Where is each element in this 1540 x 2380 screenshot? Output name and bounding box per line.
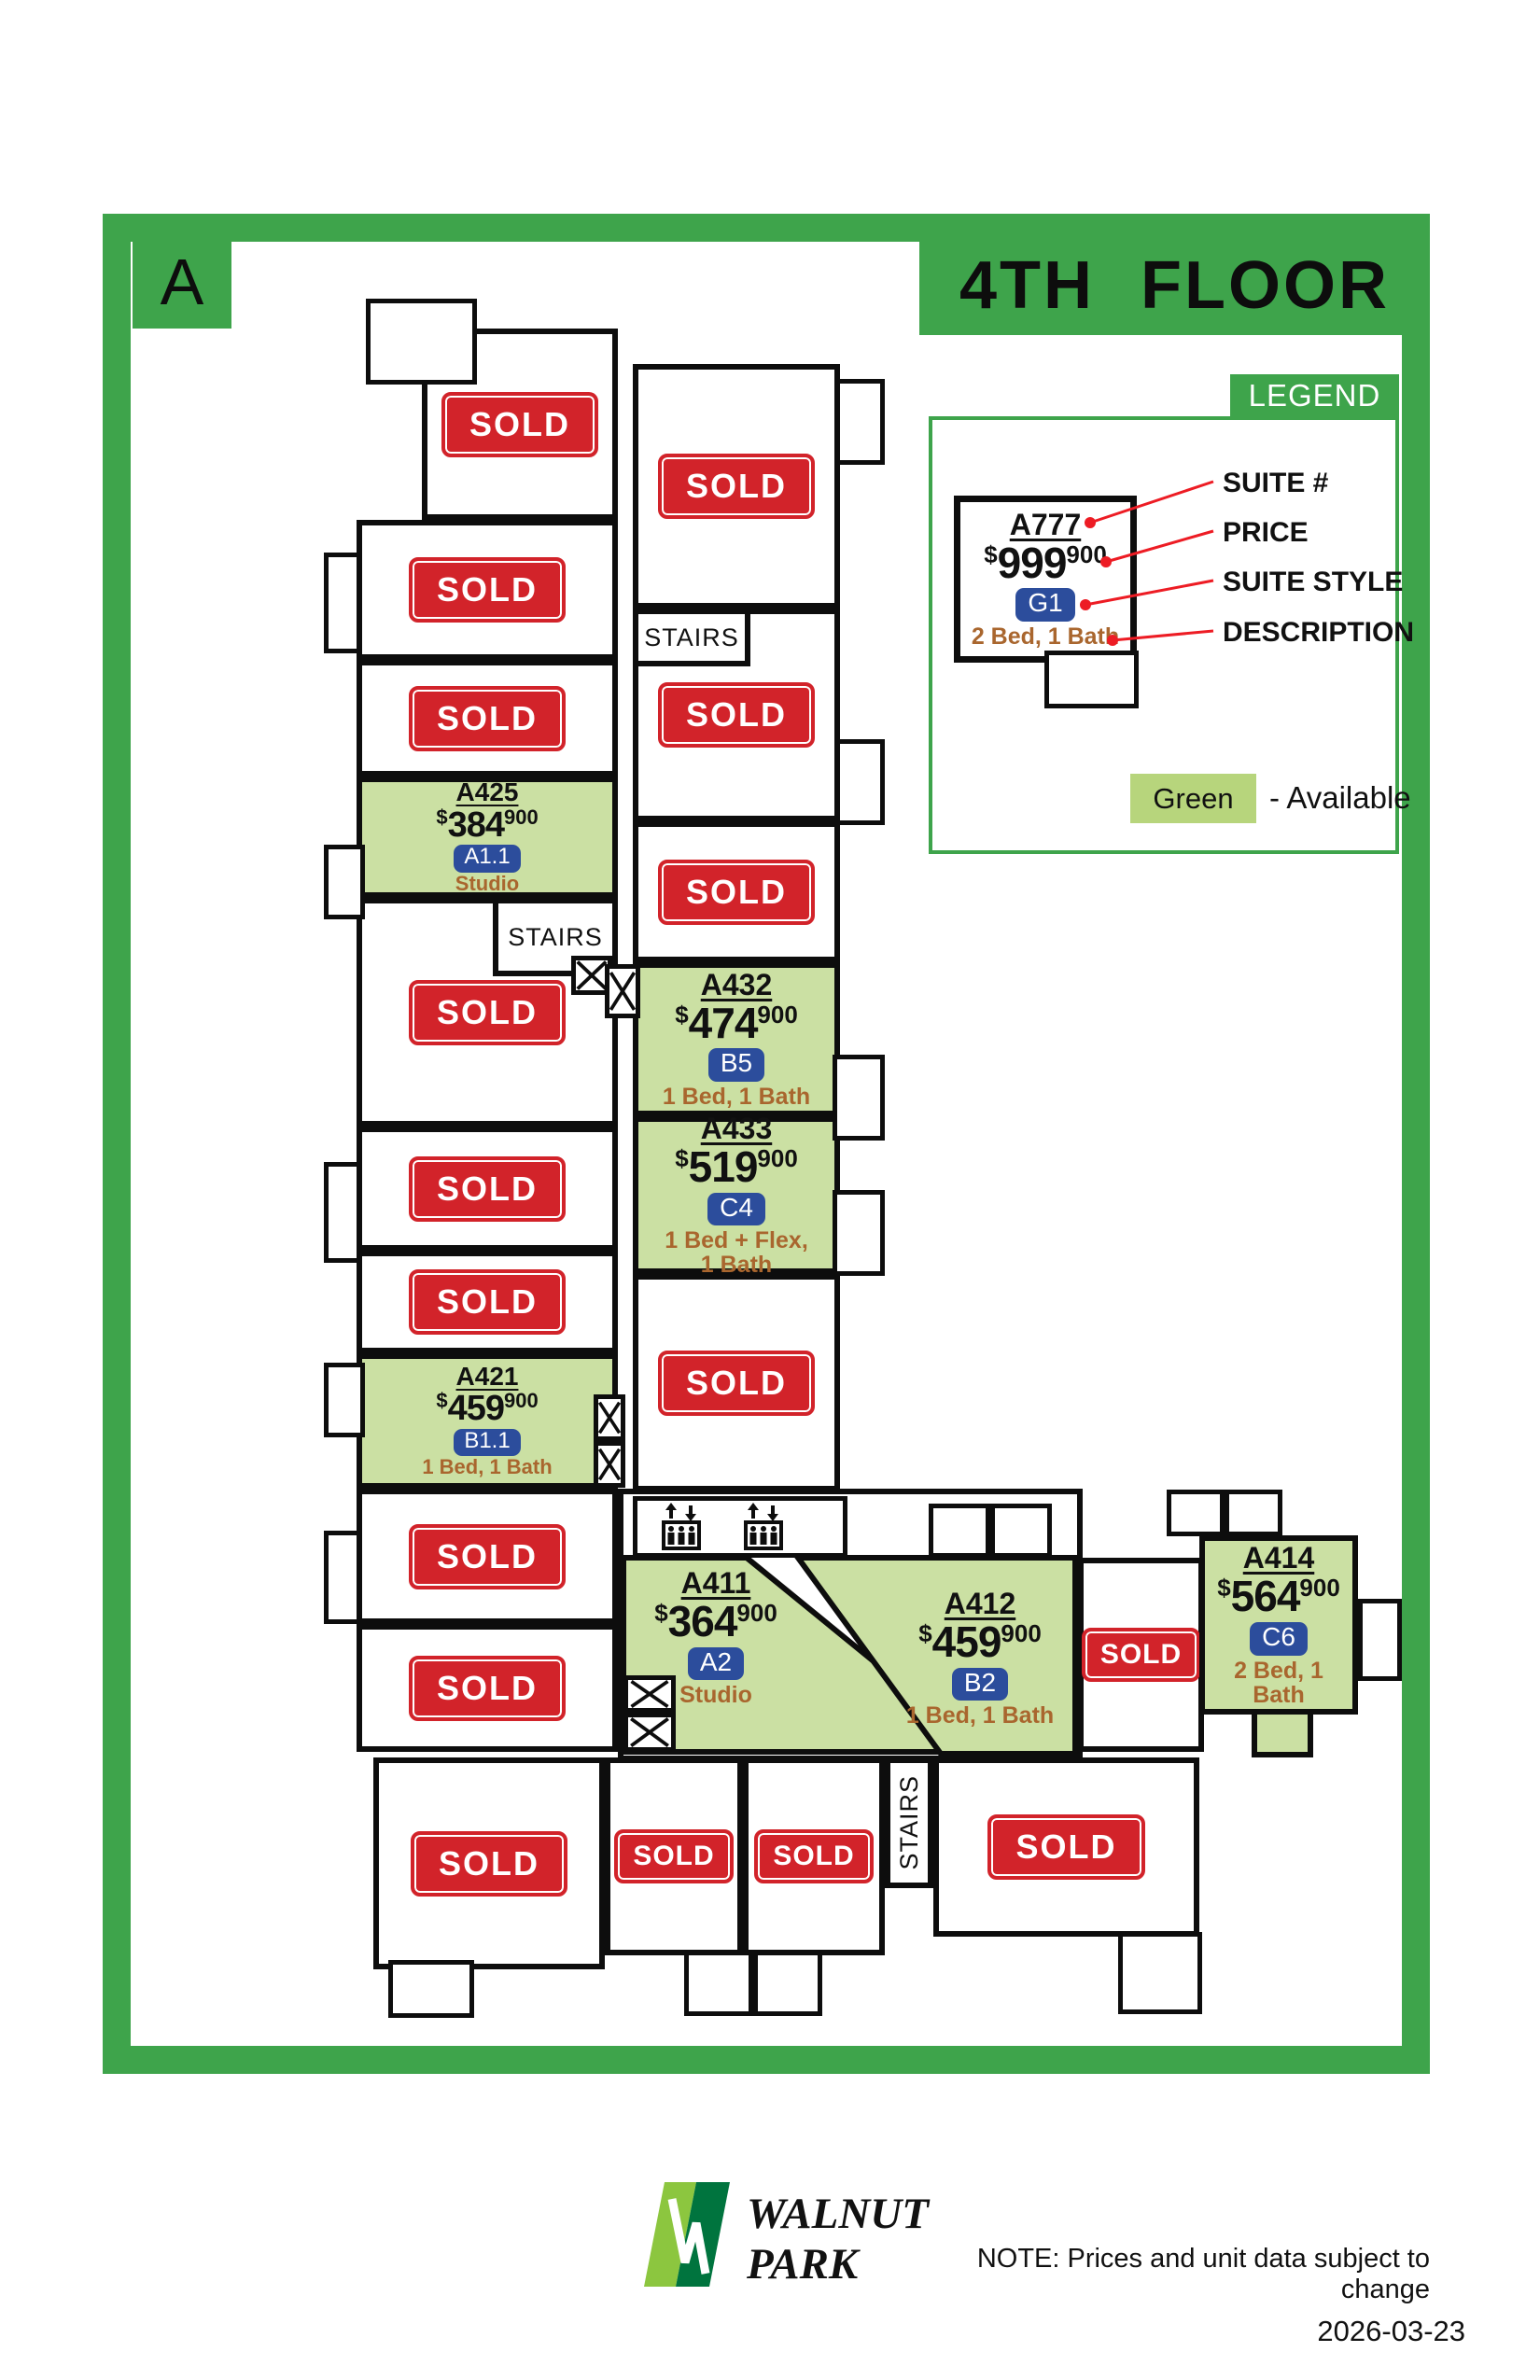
legend-label-description: DESCRIPTION <box>1223 617 1414 649</box>
unit-A412-label: A412$459900B21 Bed, 1 Bath <box>887 1589 1073 1728</box>
suite-number: A432 <box>663 970 810 1001</box>
building-block-label: A <box>133 235 231 329</box>
balcony <box>366 299 477 385</box>
unit-A433: A433$519900C41 Bed + Flex,1 Bath <box>633 1116 840 1274</box>
unit-price: $474900 <box>663 1001 810 1045</box>
brand-line2: PARK <box>747 2240 929 2290</box>
balcony <box>833 379 885 465</box>
page-title: 4TH FLOOR <box>919 235 1430 335</box>
stair-shaft-icon <box>594 1441 625 1488</box>
unit-description: 2 Bed, 1 Bath <box>972 624 1119 649</box>
suite-style-badge-wrap: A1.1 <box>436 843 538 873</box>
suite-style-badge-wrap: B2 <box>906 1664 1054 1704</box>
currency-sign: $ <box>984 540 997 568</box>
sold-room: SOLD <box>933 1757 1199 1937</box>
unit-description: 1 Bed + Flex, <box>665 1228 808 1253</box>
suite-number: A425 <box>436 779 538 806</box>
unit-description: 1 Bed, 1 Bath <box>663 1085 810 1109</box>
sold-badge: SOLD <box>409 980 566 1045</box>
suite-style-badge: C6 <box>1250 1622 1308 1656</box>
suite-style-badge-wrap: B1.1 <box>422 1427 552 1457</box>
sold-room: SOLD <box>357 1127 618 1251</box>
legend-label-suite-number: SUITE # <box>1223 468 1328 499</box>
suite-number: A414 <box>1205 1543 1352 1574</box>
unit-info-block: A421$459900B1.11 Bed, 1 Bath <box>422 1364 552 1479</box>
stairs-room: STAIRS <box>633 609 750 666</box>
suite-number: A777 <box>972 510 1119 540</box>
legend-sample-unit: A777 $999900 G1 2 Bed, 1 Bath <box>954 496 1137 663</box>
suite-style-badge: B5 <box>708 1048 764 1082</box>
unit-info-block: A433$519900C41 Bed + Flex,1 Bath <box>665 1113 808 1277</box>
unit-price: $999900 <box>972 541 1119 585</box>
available-swatch-text: - Available <box>1269 780 1411 816</box>
stairs-label: STAIRS <box>895 1775 924 1870</box>
sold-badge: SOLD <box>658 454 815 519</box>
suite-style-badge: A1.1 <box>454 845 520 872</box>
suite-style-badge: C4 <box>707 1193 765 1226</box>
elevator-lobby <box>633 1496 847 1558</box>
balcony <box>833 1055 885 1141</box>
currency-sign: $ <box>436 805 447 829</box>
unit-price: $519900 <box>665 1145 808 1189</box>
suite-style-badge: B2 <box>952 1668 1008 1701</box>
legend-title: LEGEND <box>1230 374 1399 416</box>
suite-style-badge-wrap: C4 <box>665 1189 808 1229</box>
elevator-icon <box>742 1502 785 1552</box>
sold-badge: SOLD <box>411 1831 567 1897</box>
price-cents: 900 <box>1001 1619 1041 1647</box>
unit-info-block: A425$384900A1.1Studio <box>436 779 538 895</box>
balcony <box>753 1951 822 2016</box>
price-main: 384 <box>448 805 504 845</box>
sold-room: SOLD <box>633 821 840 962</box>
price-main: 564 <box>1231 1572 1300 1620</box>
sold-badge: SOLD <box>754 1829 873 1883</box>
sold-room: SOLD <box>373 1757 605 1969</box>
suite-style-badge: G1 <box>1015 588 1074 622</box>
unit-info-block: A414$564900C62 Bed, 1 Bath <box>1205 1543 1352 1706</box>
price-cents: 900 <box>1066 540 1106 568</box>
suite-style-badge-wrap: C6 <box>1205 1618 1352 1659</box>
balcony <box>833 1190 885 1276</box>
balcony <box>1225 1490 1282 1536</box>
suite-number: A433 <box>665 1113 808 1144</box>
currency-sign: $ <box>654 1599 667 1627</box>
currency-sign: $ <box>675 1144 688 1172</box>
currency-sign: $ <box>436 1389 447 1412</box>
suite-style-badge-wrap: B5 <box>663 1044 810 1085</box>
legend-label-price: PRICE <box>1223 517 1309 549</box>
sold-room: SOLD <box>357 520 618 660</box>
currency-sign: $ <box>918 1619 931 1647</box>
brand-name: WALNUT PARK <box>747 2190 929 2289</box>
stair-shaft-icon <box>605 964 640 1018</box>
floorplan-flyer: A 4TH FLOOR LEGEND A777 $999900 G1 2 Bed… <box>0 0 1540 2380</box>
legend-label-suite-style: SUITE STYLE <box>1223 567 1403 598</box>
balcony <box>324 845 365 919</box>
sold-room: SOLD <box>357 1489 618 1624</box>
price-cents: 900 <box>736 1599 777 1627</box>
sold-room: SOLD <box>1078 1558 1204 1752</box>
walnut-park-logo-icon <box>644 2182 730 2287</box>
stairs-room: STAIRS <box>885 1757 933 1888</box>
suite-style-badge-wrap: A2 <box>654 1644 777 1684</box>
disclaimer-note: NOTE: Prices and unit data subject to ch… <box>933 2244 1430 2305</box>
available-color-swatch: Green <box>1130 774 1256 823</box>
balcony <box>324 1363 365 1437</box>
unit-extension <box>1252 1709 1313 1757</box>
sold-room: SOLD <box>633 364 840 609</box>
balcony <box>929 1504 990 1558</box>
unit-price: $459900 <box>422 1391 552 1427</box>
suite-number: A412 <box>906 1589 1054 1619</box>
sold-room: SOLD <box>633 1274 840 1491</box>
unit-A414: A414$564900C62 Bed, 1 Bath <box>1199 1535 1358 1715</box>
unit-price: $459900 <box>906 1620 1054 1664</box>
price-main: 459 <box>932 1617 1001 1666</box>
suite-number: A421 <box>422 1364 552 1391</box>
brand-line1: WALNUT <box>747 2190 929 2240</box>
price-main: 459 <box>448 1389 504 1428</box>
sold-badge: SOLD <box>441 392 598 457</box>
sold-badge: SOLD <box>409 1156 566 1222</box>
unit-A421: A421$459900B1.11 Bed, 1 Bath <box>357 1353 618 1489</box>
sold-room: SOLD <box>357 1624 618 1752</box>
price-cents: 900 <box>1299 1574 1339 1602</box>
currency-sign: $ <box>675 1001 688 1029</box>
unit-A411-label: A411$364900A2Studio <box>627 1568 805 1707</box>
stairs-label: STAIRS <box>508 923 603 952</box>
unit-description: 2 Bed, 1 Bath <box>1205 1659 1352 1707</box>
sold-room: SOLD <box>357 1251 618 1353</box>
unit-info-block: A432$474900B51 Bed, 1 Bath <box>663 970 810 1109</box>
suite-style-badge: A2 <box>688 1647 744 1681</box>
balcony <box>684 1951 753 2016</box>
currency-sign: $ <box>1217 1574 1230 1602</box>
unit-description: 1 Bed, 1 Bath <box>906 1703 1054 1728</box>
sold-badge: SOLD <box>658 860 815 925</box>
balcony <box>1118 1932 1202 2014</box>
unit-description: Studio <box>436 874 538 895</box>
balcony <box>388 1960 474 2018</box>
sold-badge: SOLD <box>409 1524 566 1589</box>
price-cents: 900 <box>757 1001 797 1029</box>
price-cents: 900 <box>504 1389 539 1412</box>
unit-price: $384900 <box>436 807 538 844</box>
stair-shaft-icon <box>594 1394 625 1441</box>
unit-price: $364900 <box>654 1600 777 1644</box>
price-main: 519 <box>689 1142 758 1191</box>
sold-badge: SOLD <box>987 1814 1144 1880</box>
sold-badge: SOLD <box>409 557 566 623</box>
sold-room: SOLD <box>743 1757 885 1955</box>
balcony <box>833 739 885 825</box>
suite-style-badge: B1.1 <box>454 1429 520 1456</box>
sold-room: SOLD <box>605 1757 743 1955</box>
unit-description: Studio <box>654 1683 777 1707</box>
stairs-label: STAIRS <box>644 623 739 652</box>
sold-room: SOLD <box>357 660 618 777</box>
sold-badge: SOLD <box>409 1656 566 1721</box>
sold-badge: SOLD <box>614 1829 733 1883</box>
price-main: 999 <box>998 539 1067 587</box>
elevator-icon <box>660 1502 703 1552</box>
sold-badge: SOLD <box>409 686 566 751</box>
price-cents: 900 <box>757 1144 797 1172</box>
price-cents: 900 <box>504 805 539 829</box>
unit-A425: A425$384900A1.1Studio <box>357 777 618 898</box>
unit-info-block: A412$459900B21 Bed, 1 Bath <box>906 1589 1054 1728</box>
suite-number: A411 <box>654 1568 777 1599</box>
date-stamp: 2026-03-23 <box>1213 2315 1465 2348</box>
legend-sample-balcony <box>1044 651 1139 708</box>
unit-description: 1 Bed, 1 Bath <box>422 1457 552 1478</box>
balcony <box>990 1504 1052 1558</box>
legend-sample-unit-block: A777 $999900 G1 2 Bed, 1 Bath <box>972 510 1119 649</box>
unit-info-block: A411$364900A2Studio <box>654 1568 777 1707</box>
sold-badge: SOLD <box>658 1351 815 1416</box>
unit-A432: A432$474900B51 Bed, 1 Bath <box>633 962 840 1116</box>
balcony <box>1358 1599 1402 1681</box>
sold-badge: SOLD <box>409 1269 566 1335</box>
stair-shaft-icon <box>623 1713 676 1752</box>
sold-badge: SOLD <box>658 682 815 748</box>
price-main: 364 <box>668 1597 737 1645</box>
sold-badge: SOLD <box>1082 1628 1200 1682</box>
balcony <box>1167 1490 1225 1536</box>
price-main: 474 <box>689 999 758 1047</box>
unit-price: $564900 <box>1205 1575 1352 1618</box>
